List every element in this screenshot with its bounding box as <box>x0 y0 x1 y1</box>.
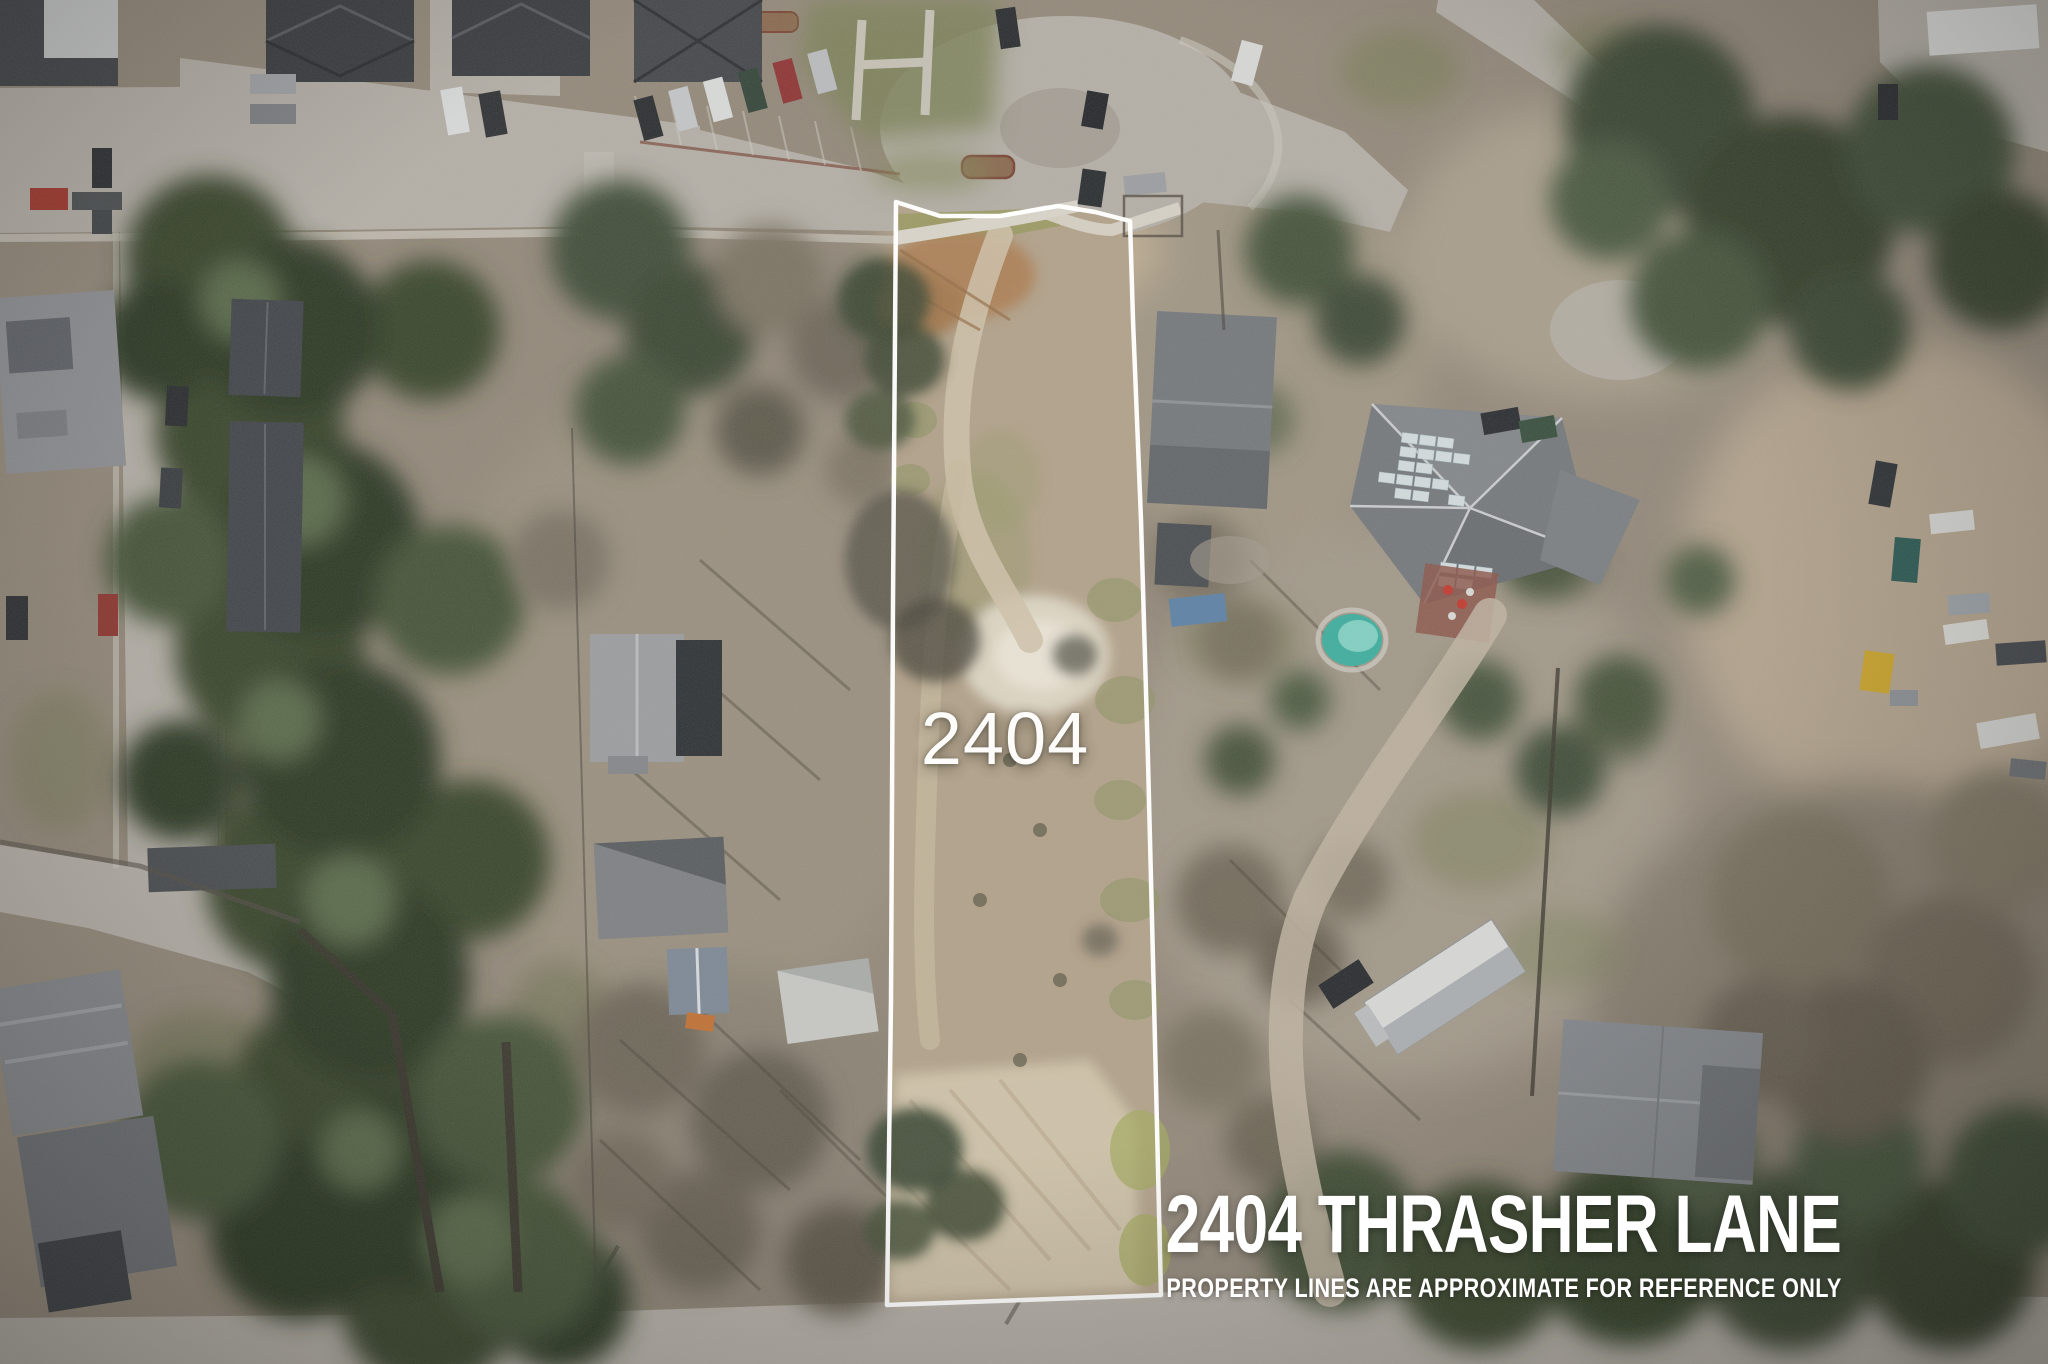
grain-texture <box>0 0 2048 1364</box>
disclaimer-text: PROPERTY LINES ARE APPROXIMATE FOR REFER… <box>1166 1273 1841 1304</box>
parcel-number-label: 2404 <box>915 696 1095 781</box>
aerial-photo: 2404 2404 THRASHER LANE PROPERTY LINES A… <box>0 0 2048 1364</box>
aerial-photo-canvas <box>0 0 2048 1364</box>
address-block: 2404 THRASHER LANE PROPERTY LINES ARE AP… <box>1059 1184 1948 1304</box>
address-title: 2404 THRASHER LANE <box>1166 1184 1841 1266</box>
